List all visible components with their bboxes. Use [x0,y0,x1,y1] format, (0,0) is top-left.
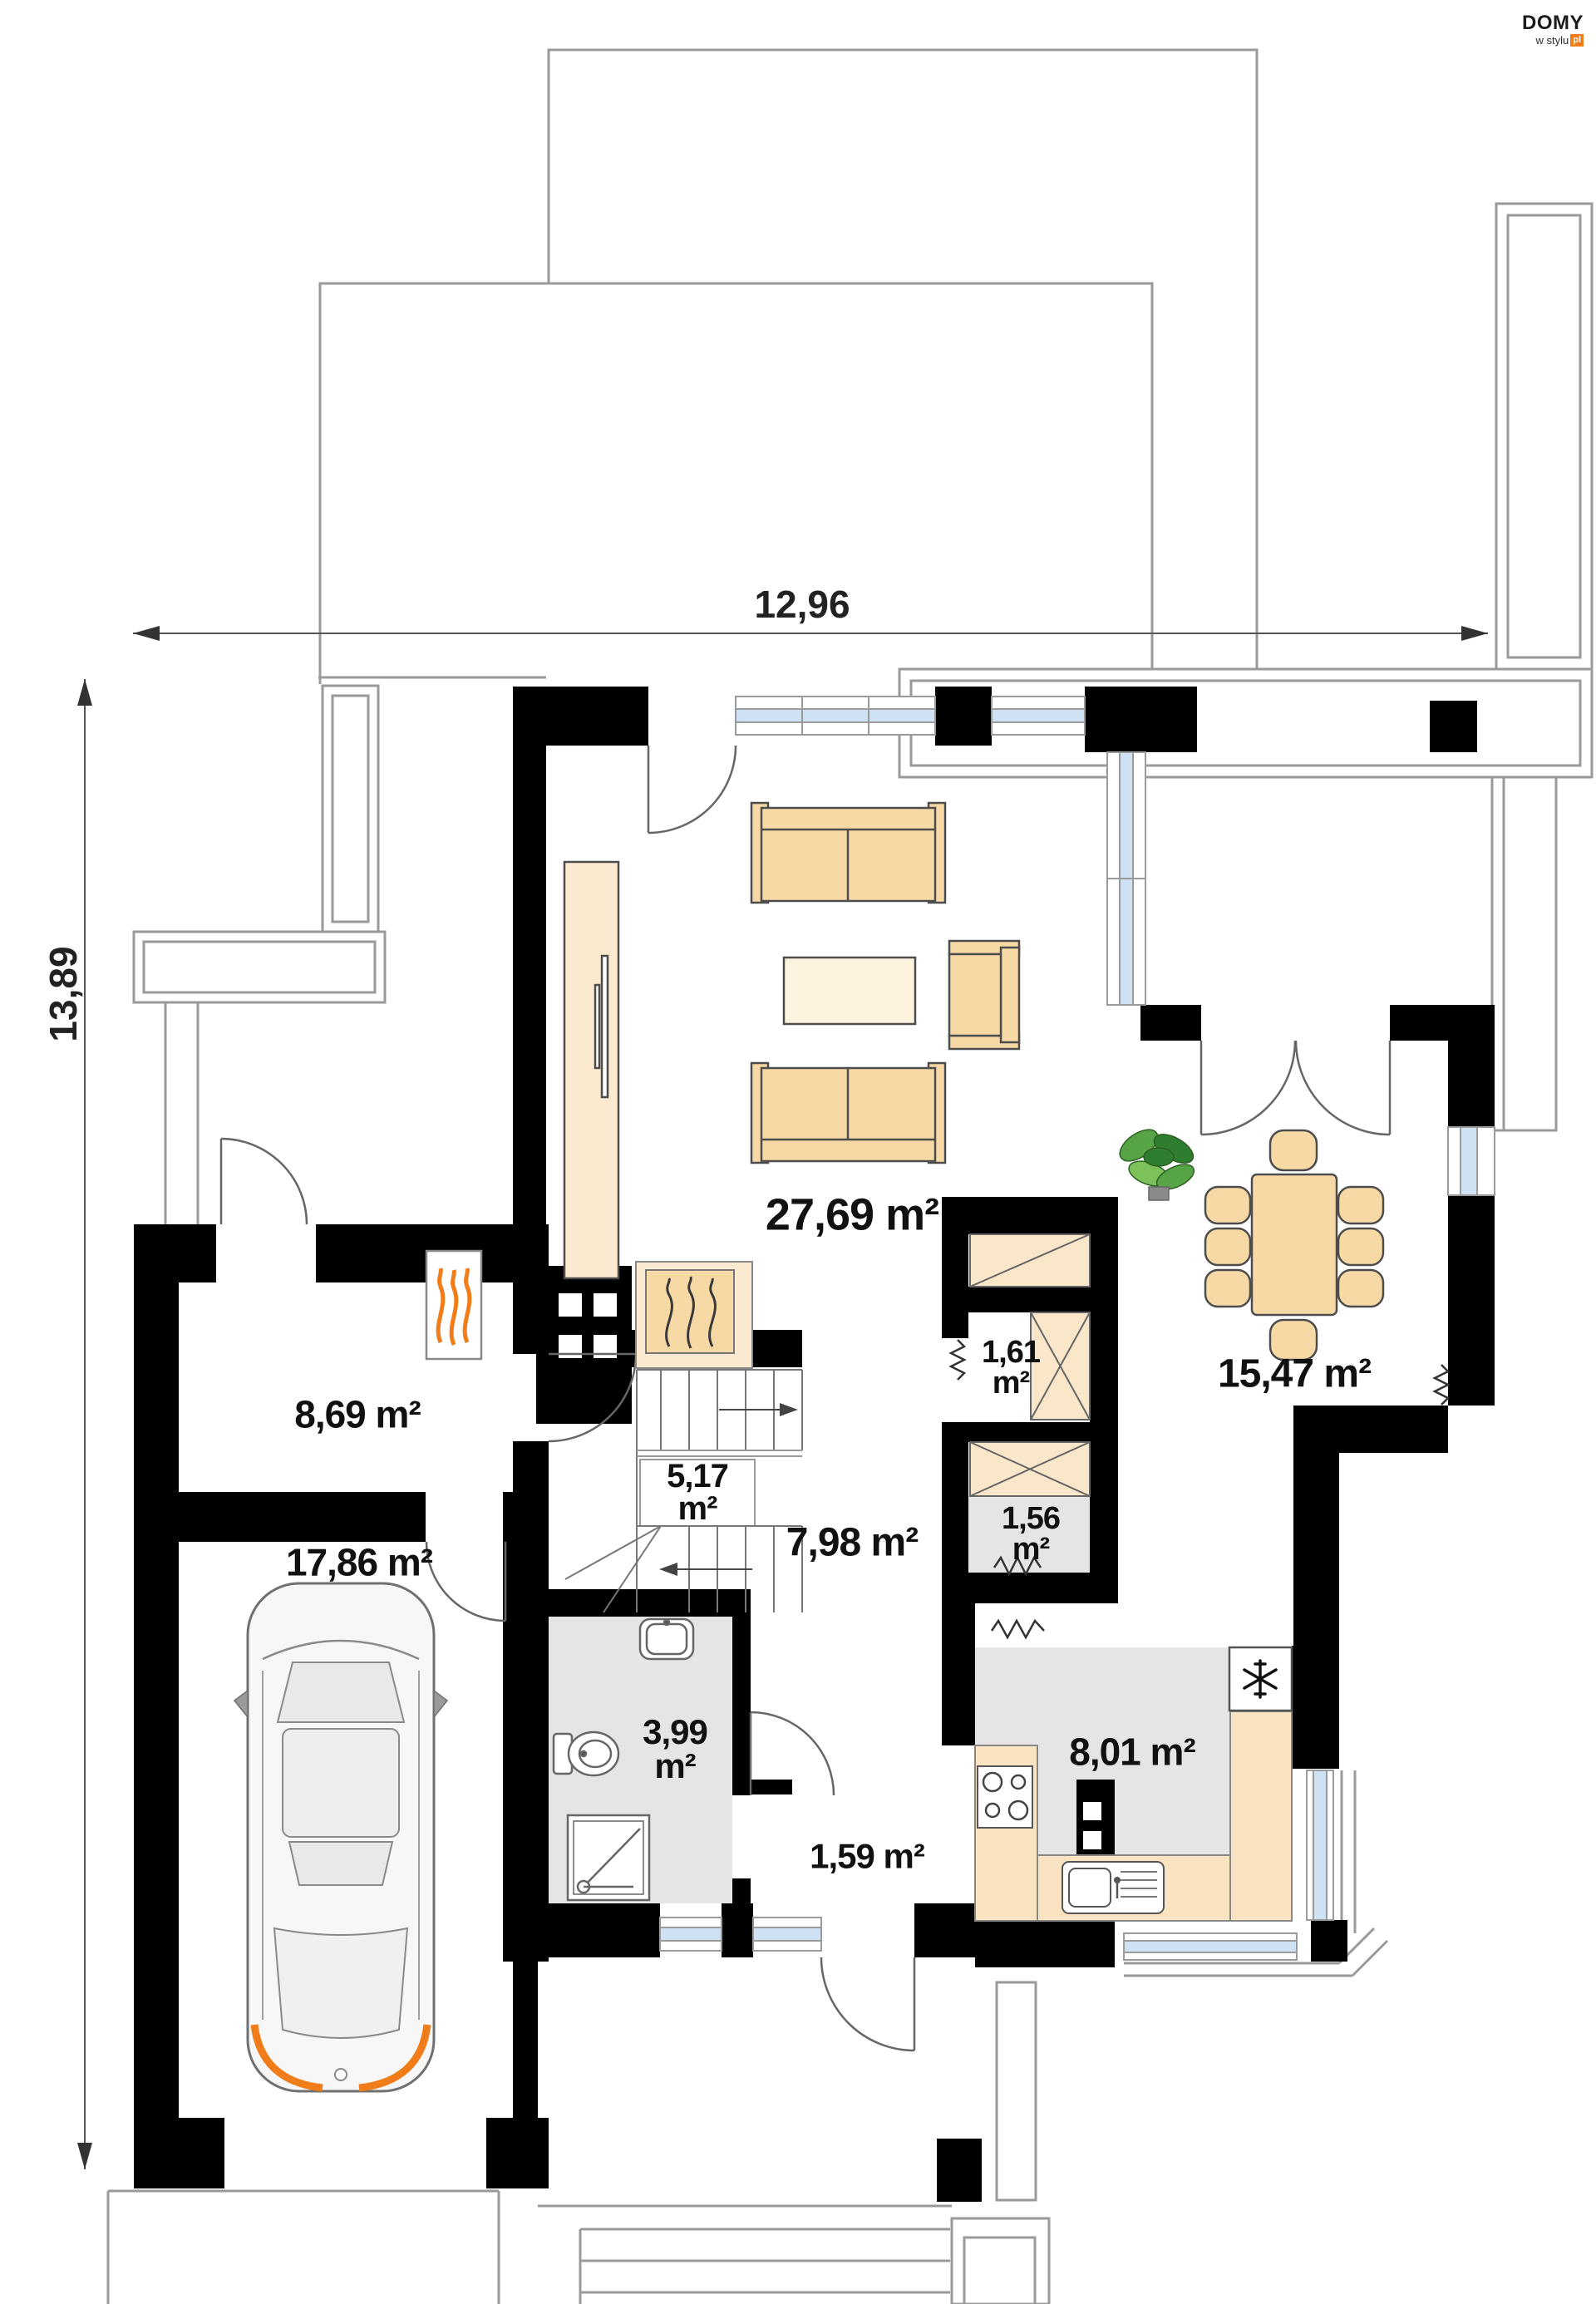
room-label-closet-1: 1,61 m² [982,1337,1040,1399]
room-label-dining-room: 15,47 m² [1218,1354,1371,1393]
dimension-label-horizontal: 12,96 [754,582,850,627]
room-label-kitchen: 8,01 m² [1069,1733,1195,1770]
room-label-closet-2: 1,56 m² [1002,1504,1060,1565]
room-label-bathroom: 3,99 m² [643,1715,707,1783]
room-label-garage: 17,86 m² [286,1543,432,1581]
room-label-vestibule: 1,59 m² [810,1839,924,1873]
logo-sub-text: w stylu [1535,34,1569,47]
brand-logo: DOMY w stylu pl [1492,13,1584,47]
room-label-boiler-room: 8,69 m² [294,1396,421,1433]
logo-brand-text: DOMY [1492,13,1584,33]
labels-layer: 27,69 m²15,47 m²7,98 m²5,17 m²1,61 m²1,5… [0,0,1596,2304]
room-label-hall: 7,98 m² [786,1523,918,1562]
room-label-living-room: 27,69 m² [766,1194,938,1238]
floor-plan: 27,69 m²15,47 m²7,98 m²5,17 m²1,61 m²1,5… [0,0,1596,2304]
logo-tld-badge: pl [1570,34,1584,47]
room-label-stairs: 5,17 m² [667,1460,728,1525]
dimension-label-vertical: 13,89 [41,946,86,1041]
